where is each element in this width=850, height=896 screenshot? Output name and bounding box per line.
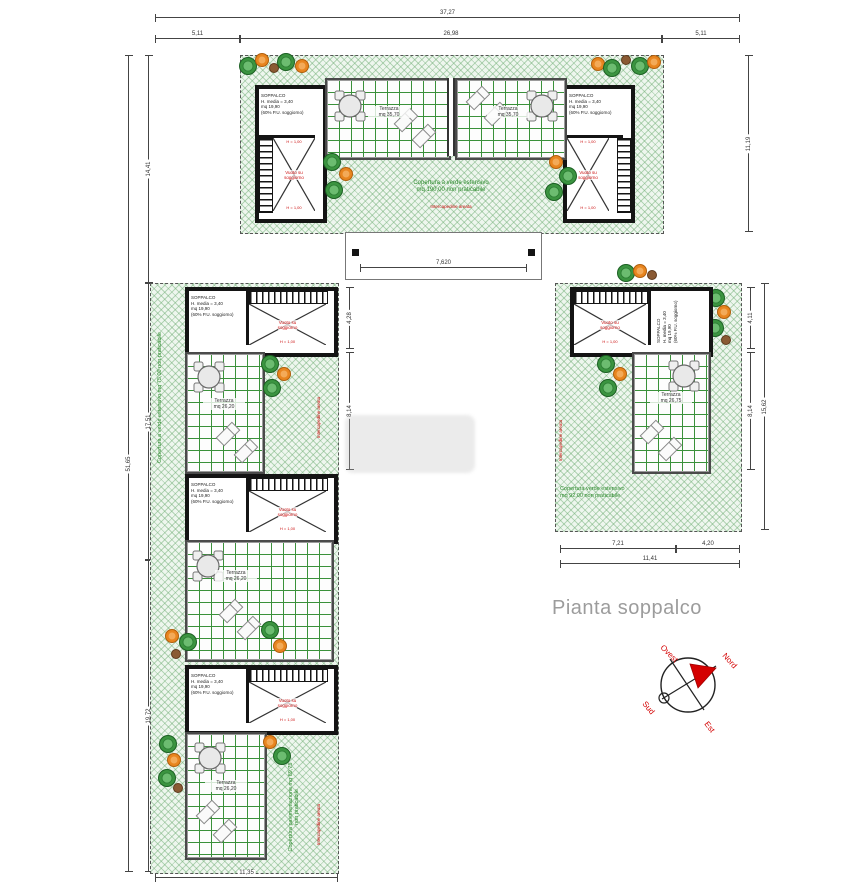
soppalco-room-label: SOPPALCO H. media = 3,40 mq 19,90 (60% P… — [261, 93, 303, 115]
terrace-label: Terrazzamq 26,75 — [650, 392, 692, 404]
table-icon — [188, 736, 232, 780]
dim-label: 4,20 — [700, 541, 716, 547]
dim-label: 51,65 — [126, 454, 132, 473]
lounger-icon — [212, 418, 264, 470]
stairs-icon — [249, 291, 328, 304]
dim-top-left: 5,11 — [155, 38, 240, 39]
roof-area-label-top: Copertura a verde estensivo mq 190,00 no… — [341, 180, 561, 194]
dim-rw-side: 15,62 — [764, 283, 765, 530]
dim-rw-btotal: 11,41 — [560, 563, 740, 564]
tree-icon — [612, 260, 664, 286]
dim-top-total: 37,27 — [155, 17, 740, 18]
dim-label: 4,11 — [748, 310, 754, 325]
stairs-icon — [249, 669, 328, 682]
soppalco-room-label: SOPPALCOH. media = 3,40mq 19,90(60% P.U.… — [191, 673, 233, 695]
dim-label: 37,27 — [438, 10, 457, 16]
compass-icon: Ovest Nord Sud Est — [630, 628, 760, 748]
lounger-icon — [192, 796, 244, 852]
cavity-note: Intercapedine areata — [316, 390, 322, 445]
cavity-note: Intercapedine areata — [558, 413, 564, 468]
parapet-label: H = 1,00 — [574, 339, 646, 344]
void-over-living: Vuoto susoggiorno H = 1,00 — [249, 491, 326, 532]
dim-label: 11,35 — [237, 870, 256, 876]
tree-icon — [540, 148, 584, 206]
pillar — [352, 249, 359, 256]
stairs-icon — [259, 138, 273, 213]
tree-icon — [256, 350, 300, 402]
tree-icon — [256, 616, 296, 662]
parapet-label: H = 1,00 — [567, 139, 609, 144]
table-icon — [187, 355, 231, 399]
dim-label: 26,98 — [441, 31, 460, 37]
tree-icon — [154, 730, 190, 798]
terrace-label: Terrazzamq 26,20 — [215, 570, 257, 582]
terrace-label: Terrazzamq 35,70 — [487, 106, 529, 118]
parapet-label: H = 1,00 — [249, 526, 326, 531]
parapet-label: H = 1,00 — [273, 139, 315, 144]
soppalco-room-label: SOPPALCOH. media = 3,40mq 19,90(60% P.U.… — [569, 93, 611, 115]
stair-core-top-left: SOPPALCO H. media = 3,40 mq 19,90 (60% P… — [255, 85, 327, 223]
void-label: Vuoto susoggiorno — [278, 320, 298, 330]
roof-area-text: Copertura a verde estensivo — [341, 180, 561, 187]
dim-rw-core: 4,11 — [750, 287, 751, 349]
stairs-icon — [617, 138, 631, 213]
tree-icon — [256, 728, 296, 774]
parapet-label: H = 1,00 — [249, 717, 326, 722]
floor-plan-canvas: 37,27 5,11 26,98 5,11 51,65 14,41 17,51 … — [0, 0, 850, 896]
compass-west-label: Ovest — [659, 643, 681, 665]
watermark — [345, 415, 475, 473]
dim-label: 7,620 — [434, 260, 453, 266]
page-title: Pianta soppalco — [552, 597, 702, 620]
void-over-living: Vuoto susoggiorno H = 1,00 — [574, 304, 646, 345]
dim-right-top: 11,19 — [748, 55, 749, 232]
void-label: Vuoto susoggiorno — [278, 698, 298, 708]
dim-label: 7,21 — [610, 541, 626, 547]
stair-core-right-wing: Vuoto susoggiorno H = 1,00 SOPPALCOH. me… — [570, 287, 713, 357]
stairs-icon — [574, 291, 648, 304]
dim-label: 14,41 — [146, 159, 152, 178]
dim-left-s3: 19,72 — [148, 560, 149, 872]
cavity-note: Intercapedine areata — [401, 203, 501, 210]
dim-label: 4,28 — [347, 310, 353, 326]
void-label: Vuoto susoggiorno — [278, 507, 298, 517]
void-label: Vuoto susoggiorno — [600, 320, 620, 330]
dim-label: 15,62 — [762, 397, 768, 416]
terrace-label: Terrazzamq 26,20 — [205, 780, 247, 792]
compass-south-label: Sud — [640, 700, 656, 717]
tree-icon — [158, 622, 206, 666]
dim-label: 11,41 — [641, 556, 660, 562]
roof-area-text: mq 190,00 non praticabile — [341, 187, 561, 194]
dim-left-total: 51,65 — [128, 55, 129, 872]
roof-area-label-bottom: Copertura pavimentazione mq 89,75 non pr… — [288, 761, 300, 853]
void-label: Vuoto susoggiorno — [284, 170, 304, 180]
dim-court: 7,620 — [360, 267, 527, 268]
roof-area-label-right: Copertura verde estensivomq 92,00 non pr… — [560, 486, 675, 500]
dim-top-mid: 26,98 — [240, 38, 662, 39]
soppalco-pct: (60% P.U. soggiorno) — [261, 110, 303, 116]
parapet-label: H = 1,00 — [273, 205, 315, 210]
terrace-divider-wall — [447, 78, 455, 156]
courtyard-opening: 7,620 — [345, 232, 542, 280]
compass-east-label: Est — [702, 720, 717, 735]
stair-core-unit1: SOPPALCOH. media = 3,40mq 19,90(60% P.U.… — [185, 287, 338, 357]
dim-label: 8,14 — [748, 403, 754, 419]
parapet-label: H = 1,00 — [249, 339, 326, 344]
dim-rw-b1: 7,21 — [560, 548, 676, 549]
void-over-living: Vuoto susoggiorno H = 1,00 — [249, 304, 326, 345]
north-arrow — [690, 664, 716, 688]
dim-label: 11,19 — [746, 134, 752, 153]
roof-area-label-left: Copertura a verde estensivo mq 75,00 non… — [157, 325, 163, 470]
dim-left-s2: 17,51 — [148, 283, 149, 560]
soppalco-room-label: SOPPALCOH. media = 3,40mq 19,90(60% P.U.… — [656, 293, 678, 343]
tree-icon — [236, 48, 314, 82]
void-over-living: H = 1,00 Vuoto susoggiorno H = 1,00 — [273, 138, 315, 211]
void-over-living: Vuoto susoggiorno H = 1,00 — [249, 682, 326, 723]
dim-top-right: 5,11 — [662, 38, 740, 39]
pillar — [528, 249, 535, 256]
dim-bottom-left: 11,35 — [155, 877, 338, 878]
cavity-note: Intercapedine areata — [316, 797, 322, 852]
dim-left-s1: 14,41 — [148, 55, 149, 283]
stair-core-unit3: SOPPALCOH. media = 3,40mq 19,90(60% P.U.… — [185, 665, 338, 735]
dim-lw-core: 4,28 — [349, 287, 350, 349]
dim-label: 5,11 — [693, 31, 708, 37]
dim-rw-b2: 4,20 — [676, 548, 740, 549]
tree-icon — [318, 148, 362, 206]
lounger-icon — [636, 416, 688, 468]
dim-rw-terrace: 8,14 — [750, 352, 751, 470]
tree-icon — [592, 350, 636, 402]
terrace-label: Terrazzamq 26,20 — [203, 398, 245, 410]
soppalco-room-label: SOPPALCOH. media = 3,40mq 19,90(60% P.U.… — [191, 482, 233, 504]
stair-core-unit2: SOPPALCOH. media = 3,40mq 19,90(60% P.U.… — [185, 474, 338, 544]
table-icon — [328, 84, 372, 128]
tree-icon — [586, 48, 664, 82]
dim-label: 5,11 — [190, 31, 205, 37]
terrace-label: Terrazzamq 35,70 — [368, 106, 410, 118]
stairs-icon — [249, 478, 328, 491]
compass-north-label: Nord — [721, 651, 739, 670]
soppalco-room-label: SOPPALCOH. media = 3,40mq 19,90(60% P.U.… — [191, 295, 233, 317]
wall — [648, 291, 651, 345]
